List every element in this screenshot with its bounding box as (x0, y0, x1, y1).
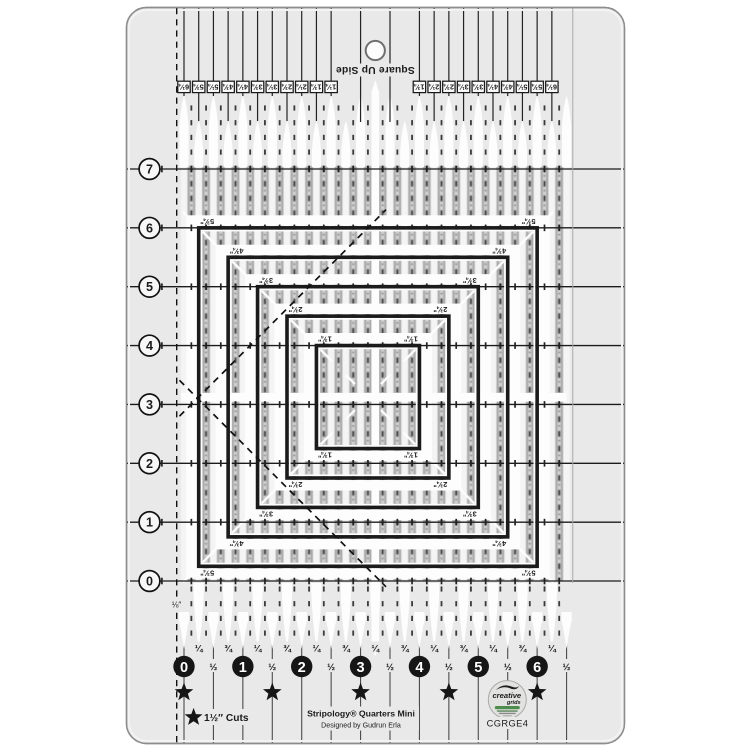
svg-text:Square Up Side: Square Up Side (336, 64, 415, 75)
svg-text:2¾": 2¾" (288, 480, 302, 489)
svg-text:¾: ¾ (342, 643, 351, 654)
svg-text:¼: ¼ (489, 643, 498, 654)
svg-text:5: 5 (474, 660, 482, 676)
svg-text:½: ½ (504, 662, 512, 673)
svg-text:2¼: 2¼ (428, 82, 439, 91)
svg-text:2¾": 2¾" (433, 305, 447, 314)
svg-text:5¾": 5¾" (521, 568, 535, 577)
svg-text:0: 0 (180, 660, 188, 676)
svg-text:2: 2 (298, 660, 306, 676)
svg-text:5¼: 5¼ (207, 82, 218, 91)
svg-text:5¾: 5¾ (531, 82, 542, 91)
svg-text:3¾": 3¾" (462, 510, 476, 519)
svg-text:3¾: 3¾ (252, 82, 263, 91)
svg-text:½: ½ (445, 662, 453, 673)
svg-text:2¾: 2¾ (281, 82, 292, 91)
svg-text:5¾": 5¾" (200, 568, 214, 577)
svg-text:¾: ¾ (283, 643, 292, 654)
svg-text:¾: ¾ (401, 643, 410, 654)
svg-text:3: 3 (357, 660, 365, 676)
svg-text:¾: ¾ (519, 643, 528, 654)
svg-text:5¾": 5¾" (521, 217, 535, 226)
svg-text:2¼: 2¼ (296, 82, 307, 91)
svg-text:5¾: 5¾ (193, 82, 204, 91)
svg-text:Designed by Gudrun Erla: Designed by Gudrun Erla (321, 721, 401, 729)
svg-text:2: 2 (146, 457, 153, 471)
svg-text:1¾: 1¾ (413, 82, 424, 91)
svg-text:1¾": 1¾" (403, 335, 417, 344)
svg-text:3¾": 3¾" (259, 276, 273, 285)
svg-text:CGRGE4: CGRGE4 (487, 718, 529, 728)
svg-text:creative: creative (492, 691, 521, 700)
svg-text:1¾: 1¾ (310, 82, 321, 91)
svg-text:¼: ¼ (254, 643, 263, 654)
svg-text:4¾: 4¾ (502, 82, 513, 91)
svg-text:1½″ Cuts: 1½″ Cuts (204, 713, 249, 724)
svg-text:4¾: 4¾ (222, 82, 233, 91)
svg-text:6: 6 (533, 660, 541, 676)
svg-text:4¾": 4¾" (229, 539, 243, 548)
svg-text:¾: ¾ (460, 643, 469, 654)
svg-text:¾: ¾ (224, 643, 233, 654)
svg-text:3: 3 (146, 398, 153, 412)
svg-text:1¾": 1¾" (403, 451, 417, 460)
svg-text:4: 4 (415, 660, 424, 676)
svg-text:5: 5 (146, 280, 153, 294)
svg-text:1¾": 1¾" (317, 335, 331, 344)
svg-text:Stripology® Quarters Mini: Stripology® Quarters Mini (307, 708, 415, 718)
svg-text:¼: ¼ (195, 643, 204, 654)
svg-text:1¼: 1¼ (325, 82, 336, 91)
svg-text:1: 1 (239, 660, 247, 676)
svg-text:4¾": 4¾" (229, 246, 243, 255)
svg-text:3¾": 3¾" (462, 276, 476, 285)
svg-text:1: 1 (146, 516, 153, 530)
svg-text:¼: ¼ (313, 643, 322, 654)
svg-text:4¾": 4¾" (492, 539, 506, 548)
svg-text:4¾": 4¾" (492, 246, 506, 255)
svg-text:2¾: 2¾ (443, 82, 454, 91)
svg-text:3¾: 3¾ (472, 82, 483, 91)
svg-text:4¼: 4¼ (487, 82, 498, 91)
svg-text:grids: grids (506, 700, 521, 706)
svg-text:3¼: 3¼ (266, 82, 277, 91)
svg-text:½: ½ (209, 662, 217, 673)
svg-text:3¾": 3¾" (259, 510, 273, 519)
svg-text:2¾": 2¾" (288, 305, 302, 314)
svg-text:¼: ¼ (548, 643, 557, 654)
svg-text:½: ½ (268, 662, 276, 673)
svg-text:0: 0 (146, 575, 153, 589)
svg-text:⅛″: ⅛″ (172, 601, 182, 610)
svg-text:5¾": 5¾" (200, 217, 214, 226)
svg-text:6¼: 6¼ (546, 82, 557, 91)
svg-text:½: ½ (563, 662, 571, 673)
svg-text:4: 4 (146, 339, 153, 353)
svg-text:½: ½ (386, 662, 394, 673)
svg-text:2¾": 2¾" (433, 480, 447, 489)
svg-text:4¼: 4¼ (237, 82, 248, 91)
svg-text:3¼: 3¼ (458, 82, 469, 91)
svg-text:¼: ¼ (430, 643, 439, 654)
svg-text:7: 7 (146, 163, 153, 177)
svg-text:6: 6 (146, 221, 153, 235)
svg-text:1¾": 1¾" (317, 451, 331, 460)
svg-text:½: ½ (327, 662, 335, 673)
svg-text:¼: ¼ (371, 643, 380, 654)
svg-text:5¼: 5¼ (516, 82, 527, 91)
svg-text:6¼: 6¼ (178, 82, 189, 91)
